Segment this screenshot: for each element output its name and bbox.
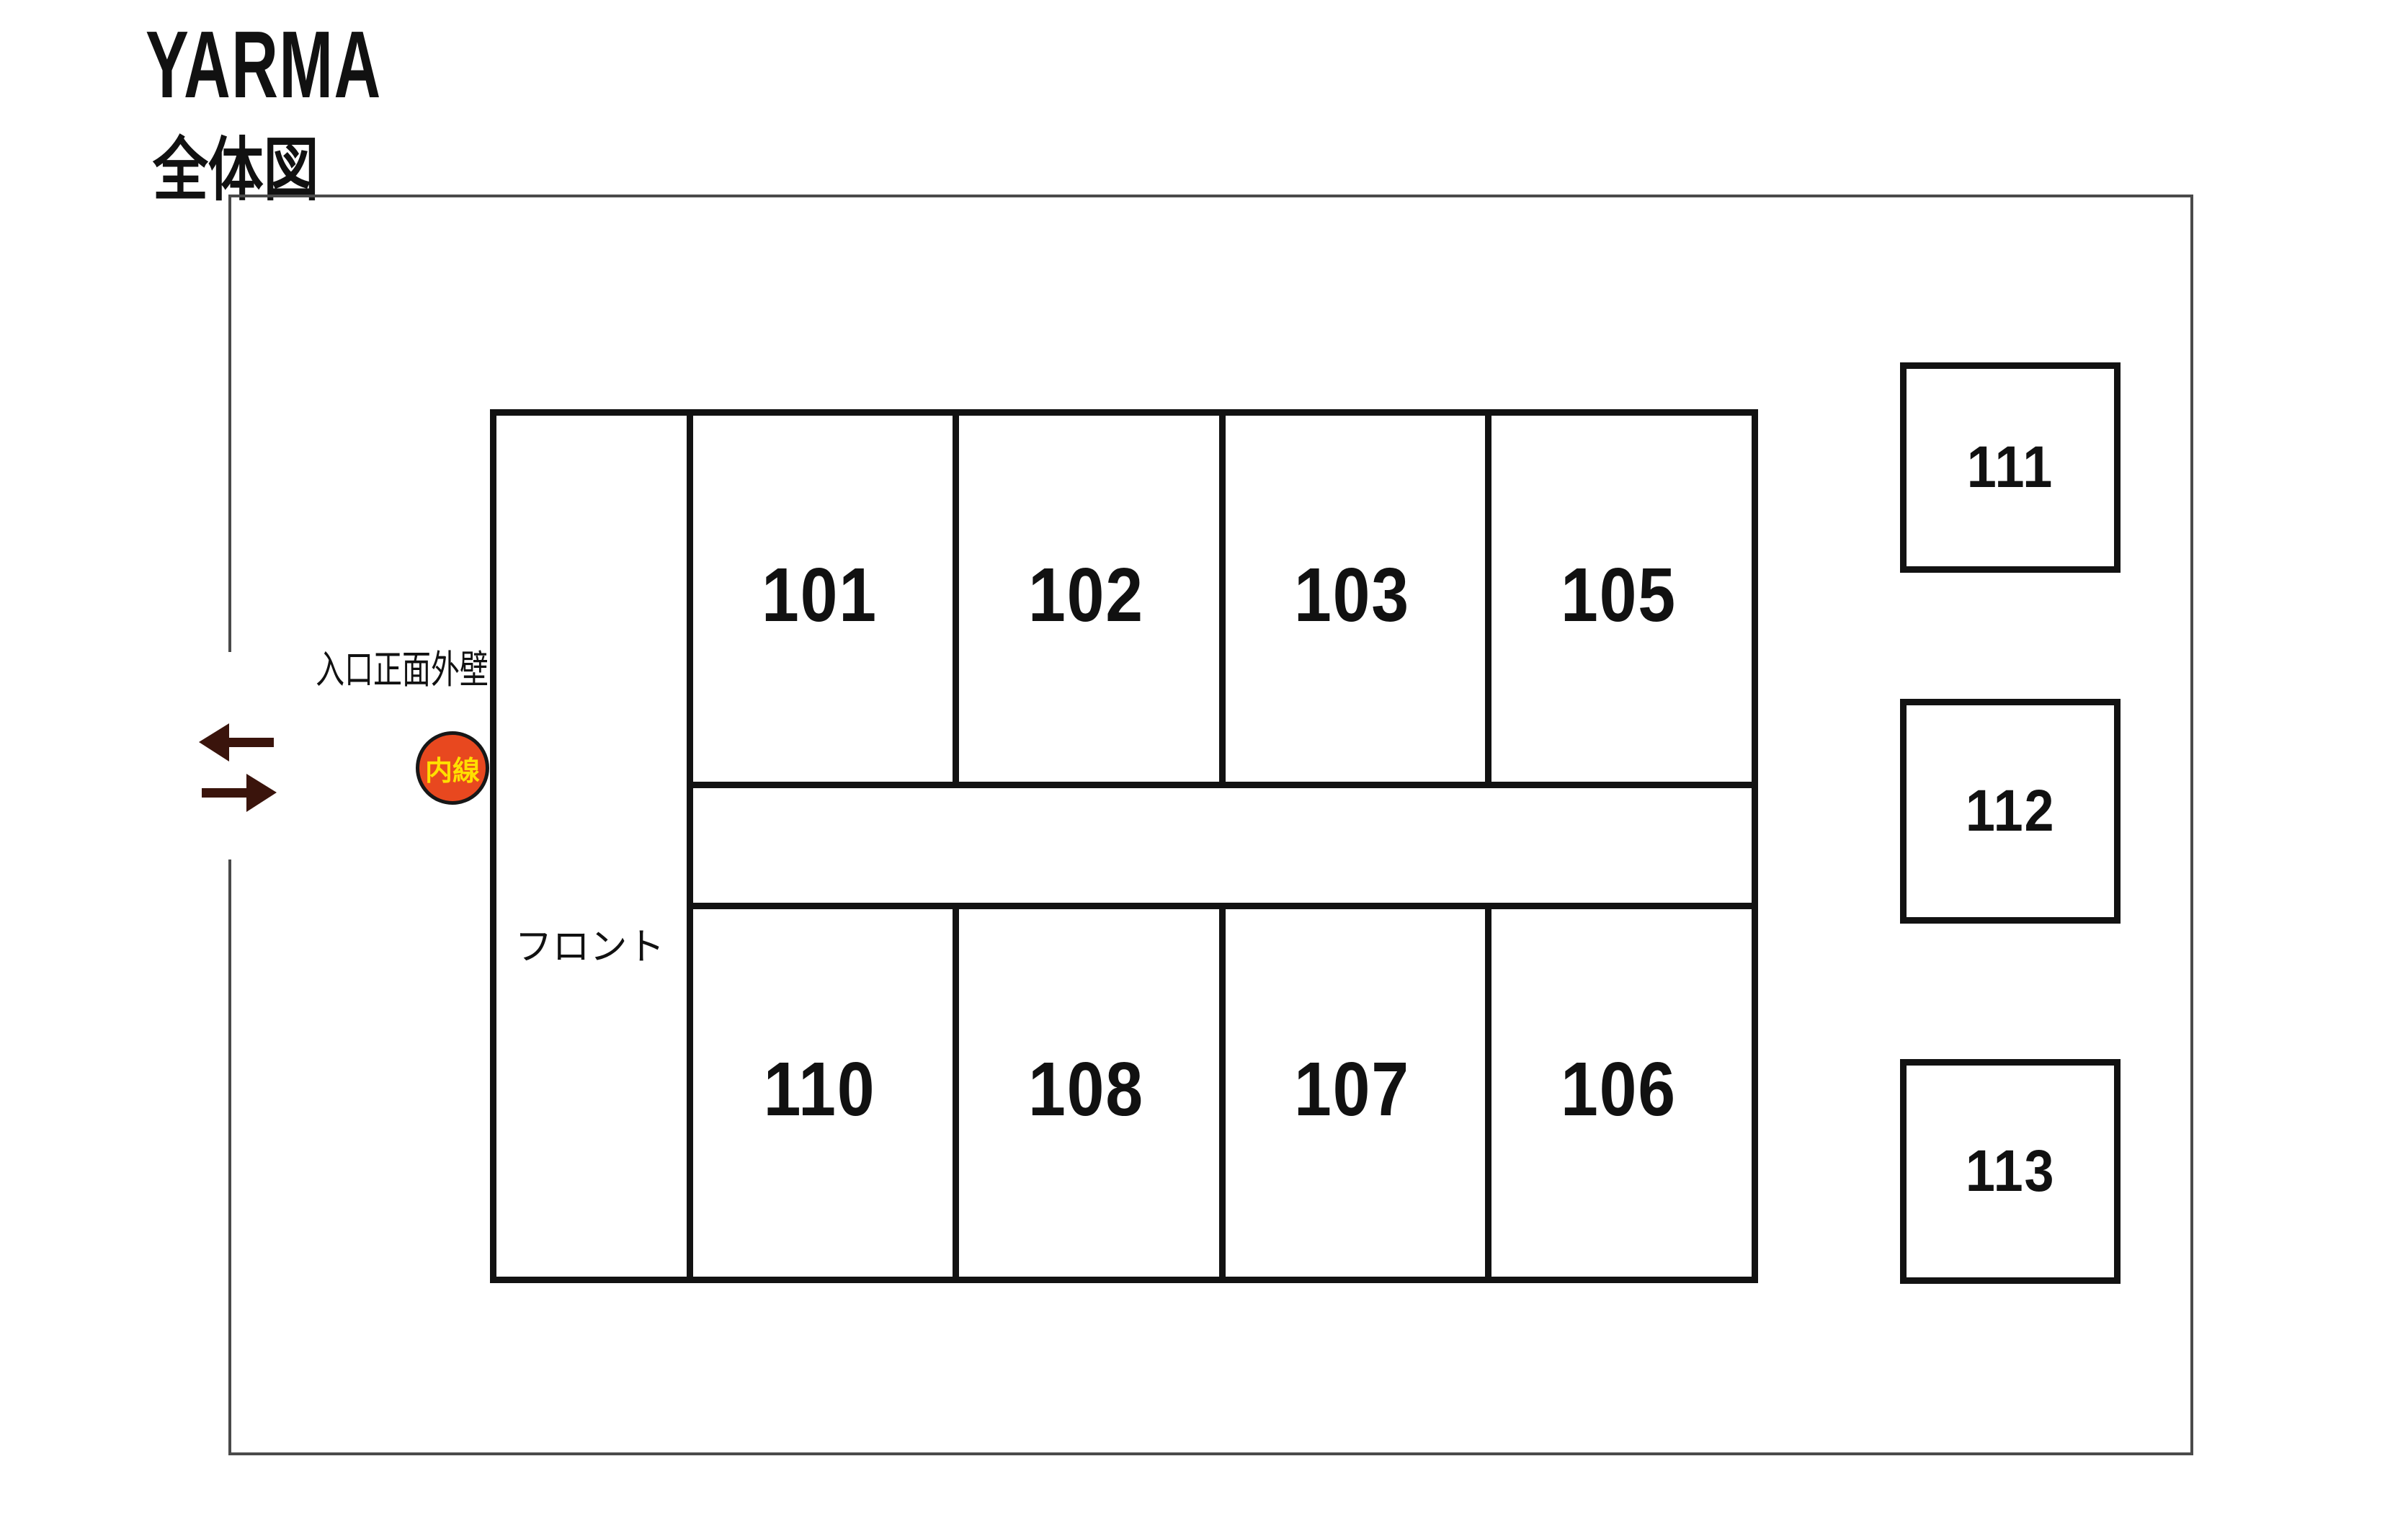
room-111-label: 111 <box>1967 434 2054 501</box>
room-103-label: 103 <box>1294 552 1410 639</box>
extension-badge-label: 内線 <box>425 749 480 788</box>
room-107-label: 107 <box>1294 1046 1410 1133</box>
room-108-label: 108 <box>1028 1046 1144 1133</box>
room-112-label: 112 <box>1966 777 2055 845</box>
front-desk-label: フロント <box>493 916 687 970</box>
room-101-label: 101 <box>762 552 878 639</box>
page-title: YARMA <box>146 10 382 119</box>
entrance-arrows-icon <box>193 712 287 820</box>
wall-main-right <box>1752 409 1758 1283</box>
floor-plan: YARMA 全体図 入口正面外壁 内線 フロント 101 102 1 <box>0 0 2408 1536</box>
room-113: 113 <box>1900 1059 2121 1284</box>
extension-badge: 内線 <box>416 731 489 805</box>
room-106-label: 106 <box>1561 1046 1677 1133</box>
room-108: 108 <box>953 903 1219 1277</box>
room-106: 106 <box>1485 903 1752 1277</box>
arrow-right-icon <box>202 774 277 812</box>
room-105-label: 105 <box>1561 552 1677 639</box>
arrow-left-icon <box>199 723 274 762</box>
wall-main-left <box>490 409 496 1283</box>
room-107: 107 <box>1219 903 1485 1277</box>
entrance-wall-label: 入口正面外壁 <box>311 647 493 693</box>
room-105: 105 <box>1485 409 1752 782</box>
room-110-label: 110 <box>764 1046 876 1133</box>
room-102: 102 <box>953 409 1219 782</box>
room-113-label: 113 <box>1966 1138 2055 1205</box>
room-103: 103 <box>1219 409 1485 782</box>
room-102-label: 102 <box>1028 552 1144 639</box>
wall-main-bottom <box>490 1277 1758 1283</box>
room-112: 112 <box>1900 699 2121 924</box>
room-111: 111 <box>1900 362 2121 573</box>
room-101: 101 <box>687 409 953 782</box>
room-110: 110 <box>687 903 953 1277</box>
